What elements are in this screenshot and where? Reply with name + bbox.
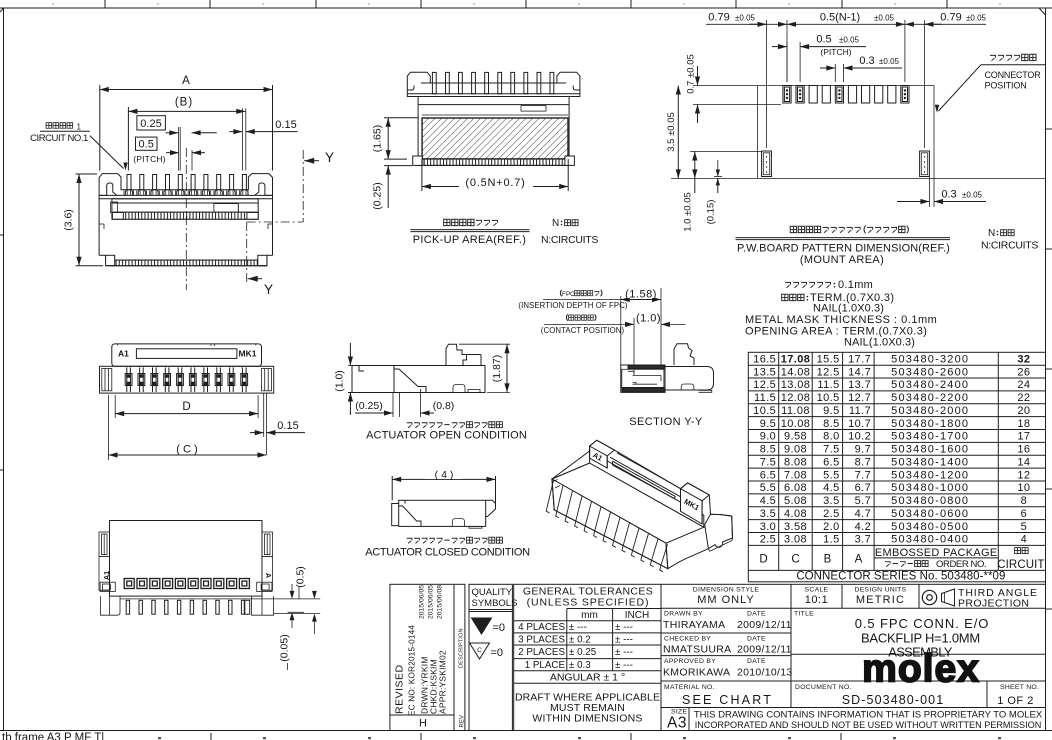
svg-text:0.15: 0.15 [277, 420, 298, 432]
svg-text:(1.58): (1.58) [625, 289, 657, 301]
svg-text:,: , [157, 0, 159, 6]
svg-text:17.7: 17.7 [848, 354, 871, 366]
svg-text:12.5: 12.5 [817, 366, 840, 378]
svg-text:P.W.BOARD PATTERN DIMENSION(RE: P.W.BOARD PATTERN DIMENSION(REF.) [737, 243, 950, 255]
svg-text:10.08: 10.08 [781, 418, 811, 430]
svg-text:± ---: ± --- [615, 622, 633, 633]
svg-text:B: B [824, 553, 832, 565]
svg-text:503480-2200: 503480-2200 [891, 392, 969, 404]
svg-text:TITLE: TITLE [794, 611, 814, 618]
svg-text:503480-1000: 503480-1000 [891, 482, 969, 494]
svg-text:8.0: 8.0 [823, 431, 840, 443]
svg-text:0.25: 0.25 [140, 118, 161, 130]
svg-text:SECTION Y-Y: SECTION Y-Y [629, 416, 703, 428]
svg-text:(UNLESS SPECIFIED): (UNLESS SPECIFIED) [527, 597, 650, 609]
svg-text:3 PLACES: 3 PLACES [518, 634, 565, 645]
svg-text:PICK-UP AREA(REF.): PICK-UP AREA(REF.) [413, 234, 526, 246]
svg-text:D: D [759, 553, 767, 565]
svg-text:11.5: 11.5 [817, 379, 839, 391]
svg-text:3.5: 3.5 [760, 508, 777, 520]
svg-text:±0.05: ±0.05 [839, 36, 860, 45]
svg-text:2015/06/05: 2015/06/05 [419, 585, 426, 619]
svg-text:(0.25): (0.25) [355, 400, 382, 412]
svg-text:4.2: 4.2 [855, 521, 872, 533]
svg-text:CIRCUIT: CIRCUIT [997, 559, 1044, 571]
svg-text:,: , [368, 0, 370, 6]
svg-text:2.5: 2.5 [760, 534, 777, 546]
svg-text:(3.6): (3.6) [63, 209, 75, 231]
svg-text:12: 12 [1017, 469, 1030, 481]
svg-text:DRAWN BY: DRAWN BY [664, 611, 703, 618]
svg-text:8.5: 8.5 [760, 444, 777, 456]
svg-text:KMORIKAWA: KMORIKAWA [663, 667, 730, 679]
svg-text:ACTUATOR OPEN CONDITION: ACTUATOR OPEN CONDITION [366, 430, 527, 442]
svg-text:3.5 ±0.05: 3.5 ±0.05 [666, 112, 677, 152]
svg-text:20: 20 [1017, 405, 1030, 417]
svg-text:METRIC: METRIC [856, 594, 905, 606]
svg-text:8.5: 8.5 [823, 418, 840, 430]
svg-text:2009/12/11: 2009/12/11 [737, 619, 792, 631]
svg-text:0.5: 0.5 [816, 34, 831, 46]
svg-text:8.7: 8.7 [855, 457, 872, 469]
svg-text:10: 10 [1017, 482, 1030, 494]
svg-text:9.7: 9.7 [855, 444, 872, 456]
svg-text:H: H [419, 718, 427, 730]
svg-text:,: , [52, 0, 54, 6]
svg-text:MM ONLY: MM ONLY [697, 594, 755, 606]
svg-text:INCORPORATED AND SHOULD NOT BE: INCORPORATED AND SHOULD NOT BE USED WITH… [695, 720, 1042, 730]
svg-text:10.2: 10.2 [848, 431, 871, 443]
svg-text:503480-0400: 503480-0400 [891, 534, 969, 546]
svg-text:7.5: 7.5 [823, 444, 840, 456]
svg-text:( C ): ( C ) [176, 444, 197, 456]
svg-text:6.7: 6.7 [855, 482, 872, 494]
svg-text:DOCUMENT NO.: DOCUMENT NO. [795, 684, 852, 691]
svg-text:DATE: DATE [747, 658, 766, 665]
svg-text:(CONTACT POSITION): (CONTACT POSITION) [541, 326, 625, 335]
svg-text:A1: A1 [118, 349, 129, 359]
svg-text:(B): (B) [175, 97, 193, 109]
svg-text:C: C [477, 647, 482, 654]
svg-text:10.7: 10.7 [848, 418, 871, 430]
svg-text:2 PLACES: 2 PLACES [518, 647, 565, 658]
svg-text:DESCRIPTION: DESCRIPTION [459, 628, 465, 668]
svg-text:10.5: 10.5 [817, 392, 840, 404]
svg-text:0.5(N-1): 0.5(N-1) [820, 11, 860, 23]
svg-text:1: 1 [77, 123, 82, 132]
svg-text:1 PLACE: 1 PLACE [525, 660, 566, 671]
svg-text:9.5: 9.5 [760, 418, 777, 430]
svg-text:4.5: 4.5 [823, 482, 840, 494]
svg-text:METAL MASK THICKNESS : 0.1mm: METAL MASK THICKNESS : 0.1mm [745, 314, 937, 326]
svg-text:=0: =0 [493, 622, 506, 634]
svg-text:503480-1600: 503480-1600 [891, 444, 969, 456]
svg-text:APPR:YSKIM02: APPR:YSKIM02 [438, 650, 448, 714]
svg-text:SEE CHART: SEE CHART [682, 693, 773, 707]
svg-text:CIRCUIT NO.1: CIRCUIT NO.1 [30, 133, 88, 144]
svg-text:(PITCH): (PITCH) [820, 47, 851, 57]
svg-text:0.1mm: 0.1mm [838, 279, 873, 291]
svg-text:2015/06/05: 2015/06/05 [428, 585, 435, 619]
svg-text:15.5: 15.5 [817, 354, 840, 366]
svg-text:5.5: 5.5 [760, 482, 777, 494]
svg-text:ACTUATOR CLOSED CONDITION: ACTUATOR CLOSED CONDITION [365, 547, 530, 559]
svg-text:DATE: DATE [747, 636, 766, 643]
svg-text:QUALITY: QUALITY [472, 587, 513, 598]
svg-text:Y: Y [325, 150, 334, 165]
svg-text:9.0: 9.0 [760, 431, 777, 443]
svg-text:4.7: 4.7 [855, 508, 872, 520]
svg-text:0.5 FPC CONN. E/O: 0.5 FPC CONN. E/O [855, 616, 990, 631]
svg-text:(1.0): (1.0) [334, 370, 346, 392]
svg-text:EC NO: KOR2015-0144: EC NO: KOR2015-0144 [408, 625, 417, 716]
svg-text:9.08: 9.08 [784, 444, 807, 456]
svg-text:(MOUNT AREA): (MOUNT AREA) [800, 254, 884, 266]
svg-text:7.7: 7.7 [855, 469, 872, 481]
svg-text:4.08: 4.08 [784, 508, 807, 520]
svg-text:10:1: 10:1 [805, 594, 828, 606]
svg-text:24: 24 [1017, 379, 1030, 391]
svg-text:503480-0500: 503480-0500 [891, 521, 969, 533]
svg-text:REVISED: REVISED [394, 664, 406, 714]
svg-text:5.08: 5.08 [784, 495, 807, 507]
svg-text:0.7 ±0.05: 0.7 ±0.05 [686, 54, 697, 94]
svg-text:3.5: 3.5 [823, 495, 840, 507]
svg-text:THIS DRAWING CONTAINS INFORMAT: THIS DRAWING CONTAINS INFORMATION THAT I… [694, 710, 1043, 721]
svg-text:7.5: 7.5 [760, 457, 777, 469]
svg-text:(INSERTION DEPTH OF FPC): (INSERTION DEPTH OF FPC) [518, 301, 628, 310]
svg-text:CHECKED BY: CHECKED BY [664, 636, 711, 643]
svg-text:REV: REV [460, 715, 466, 727]
svg-text:,: , [578, 0, 580, 6]
svg-text:,: , [788, 0, 790, 6]
svg-text:7.08: 7.08 [784, 469, 807, 481]
svg-text:C: C [791, 553, 799, 565]
svg-text:NAIL(1.0X0.3): NAIL(1.0X0.3) [844, 337, 915, 349]
svg-text:MK1: MK1 [239, 349, 257, 359]
svg-text:NAIL(1.0X0.3): NAIL(1.0X0.3) [813, 303, 884, 315]
svg-text:3.58: 3.58 [784, 521, 807, 533]
svg-text:± 0.2: ± 0.2 [569, 634, 591, 645]
svg-text:8: 8 [1021, 495, 1028, 507]
svg-text:DATE: DATE [747, 611, 766, 618]
svg-text:17.08: 17.08 [781, 354, 811, 366]
svg-text:0.5: 0.5 [139, 139, 154, 151]
svg-text:503480-0600: 503480-0600 [891, 508, 969, 520]
svg-text:±0.05: ±0.05 [879, 57, 900, 66]
svg-text:Y: Y [264, 282, 273, 297]
svg-text:503480-1200: 503480-1200 [891, 469, 969, 481]
svg-text:,: , [262, 0, 264, 6]
svg-text:±0.05: ±0.05 [874, 13, 895, 22]
svg-text:13.08: 13.08 [781, 379, 811, 391]
svg-text:ANGULAR ± 1 °: ANGULAR ± 1 ° [550, 672, 625, 684]
svg-text:3.08: 3.08 [784, 534, 807, 546]
svg-text:4 PLACES: 4 PLACES [518, 622, 565, 633]
svg-text:D: D [182, 401, 190, 413]
svg-text:1.0 ±0.05: 1.0 ±0.05 [683, 192, 694, 232]
svg-text:(PITCH): (PITCH) [133, 154, 166, 164]
svg-text:17: 17 [1017, 431, 1030, 443]
svg-text:1 OF 2: 1 OF 2 [997, 695, 1034, 707]
svg-text:(0.8): (0.8) [433, 400, 455, 412]
svg-text:N: N [988, 228, 995, 239]
svg-text:POSITION: POSITION [985, 81, 1027, 91]
svg-text:SCALE: SCALE [805, 587, 829, 594]
svg-text:3.0: 3.0 [760, 521, 777, 533]
svg-text:6: 6 [1021, 508, 1028, 520]
svg-text:26: 26 [1017, 366, 1030, 378]
svg-text:DESIGN UNITS: DESIGN UNITS [855, 587, 907, 594]
svg-text:6.5: 6.5 [823, 457, 840, 469]
svg-text:ORDER NO.: ORDER NO. [936, 559, 986, 570]
svg-text:503480-0800: 503480-0800 [891, 495, 969, 507]
svg-text:± ---: ± --- [615, 647, 633, 658]
svg-text:DIMENSION STYLE: DIMENSION STYLE [693, 587, 760, 594]
svg-text:2010/10/13: 2010/10/13 [737, 667, 793, 679]
svg-text:5.7: 5.7 [855, 495, 872, 507]
svg-text:CONNECTOR SERIES No. 503480-**: CONNECTOR SERIES No. 503480-**09 [796, 571, 1005, 583]
svg-text:5.5: 5.5 [823, 469, 840, 481]
svg-text:503480-2600: 503480-2600 [891, 366, 969, 378]
svg-text:SYMBOLS: SYMBOLS [472, 598, 518, 609]
svg-text:(1.65): (1.65) [372, 125, 384, 152]
svg-text:0.79: 0.79 [940, 11, 961, 23]
svg-text:14.08: 14.08 [781, 366, 811, 378]
svg-text:16: 16 [1017, 444, 1030, 456]
svg-text:A: A [264, 573, 271, 578]
svg-text:± 0.25: ± 0.25 [569, 647, 597, 658]
svg-text:18: 18 [1017, 418, 1030, 430]
svg-text:,: , [894, 0, 896, 6]
svg-text:0.79: 0.79 [708, 11, 729, 23]
svg-text:3.7: 3.7 [855, 534, 872, 546]
svg-text:SD-503480-001: SD-503480-001 [842, 693, 945, 707]
svg-text:503480-2400: 503480-2400 [891, 379, 969, 391]
svg-text:,: , [473, 0, 475, 6]
svg-text:14: 14 [1017, 457, 1030, 469]
svg-text:± ---: ± --- [615, 660, 633, 671]
svg-text:11.08: 11.08 [781, 405, 810, 417]
svg-text:503480-2000: 503480-2000 [891, 405, 969, 417]
svg-text:APPROVED BY: APPROVED BY [664, 658, 716, 665]
svg-text:INCH: INCH [625, 610, 649, 621]
svg-text:A3: A3 [667, 715, 687, 732]
svg-text:32: 32 [1017, 354, 1030, 366]
svg-text:(0.05): (0.05) [279, 634, 291, 661]
svg-text:13.7: 13.7 [848, 379, 871, 391]
svg-text:A: A [855, 553, 863, 565]
svg-text:2.5: 2.5 [823, 508, 840, 520]
svg-text:± ---: ± --- [569, 622, 587, 633]
svg-text:mm: mm [581, 610, 598, 621]
svg-text:(1.87): (1.87) [491, 355, 503, 382]
svg-text:2009/12/11: 2009/12/11 [737, 644, 792, 656]
svg-text:4: 4 [1021, 534, 1028, 546]
svg-text:10.5: 10.5 [753, 405, 776, 417]
svg-text:A1: A1 [104, 571, 111, 580]
svg-text:503480-3200: 503480-3200 [891, 354, 969, 366]
svg-text:503480-1800: 503480-1800 [891, 418, 969, 430]
svg-text:22: 22 [1017, 392, 1030, 404]
svg-text:N: N [552, 218, 559, 229]
svg-text:11.7: 11.7 [849, 405, 871, 417]
svg-text:2.0: 2.0 [823, 521, 840, 533]
svg-text:(1.0): (1.0) [636, 313, 661, 325]
svg-text:0.15: 0.15 [275, 119, 296, 131]
svg-text:THIRAYAMA: THIRAYAMA [663, 619, 725, 631]
svg-text:(0.5N+0.7): (0.5N+0.7) [465, 177, 525, 189]
svg-text:(0.5): (0.5) [295, 566, 307, 588]
svg-text:2015/06/08: 2015/06/08 [437, 585, 444, 619]
svg-text:9.5: 9.5 [823, 405, 840, 417]
svg-text:,: , [683, 0, 685, 6]
svg-text:(0.25): (0.25) [372, 182, 384, 209]
svg-text:EMBOSSED PACKAGE: EMBOSSED PACKAGE [875, 547, 998, 559]
svg-text:6.5: 6.5 [760, 469, 777, 481]
svg-text:14.7: 14.7 [848, 366, 871, 378]
svg-text:1.5: 1.5 [823, 534, 840, 546]
svg-text:WITHIN DIMENSIONS: WITHIN DIMENSIONS [532, 713, 642, 725]
svg-text:503480-1700: 503480-1700 [891, 431, 969, 443]
svg-text:13.5: 13.5 [753, 366, 776, 378]
svg-text:,: , [999, 0, 1001, 6]
svg-text:PROJECTION: PROJECTION [958, 598, 1029, 610]
svg-text:A: A [182, 75, 190, 87]
svg-text:(0.15): (0.15) [706, 200, 717, 225]
svg-text:± ---: ± --- [615, 634, 633, 645]
svg-text:N:CIRCUITS: N:CIRCUITS [541, 234, 598, 246]
svg-text:5: 5 [1021, 521, 1028, 533]
svg-text:NMATSUURA: NMATSUURA [663, 644, 731, 656]
svg-text:4.5: 4.5 [760, 495, 777, 507]
svg-text:±0.05: ±0.05 [966, 13, 987, 22]
svg-text:0.3: 0.3 [859, 55, 874, 67]
svg-text:BACKFLIP H=1.0MM: BACKFLIP H=1.0MM [861, 631, 980, 646]
svg-text:tb frame A3 P MF T|: tb frame A3 P MF T| [2, 732, 104, 740]
svg-text:12.5: 12.5 [753, 379, 776, 391]
svg-text:N:CIRCUITS: N:CIRCUITS [981, 240, 1038, 252]
svg-text:±0.05: ±0.05 [962, 191, 983, 200]
svg-text:( 4 ): ( 4 ) [435, 469, 454, 481]
svg-text:8.08: 8.08 [784, 457, 807, 469]
svg-text:CONNECTOR: CONNECTOR [985, 70, 1042, 80]
svg-text:=0: =0 [491, 647, 504, 659]
svg-text:12.7: 12.7 [848, 392, 871, 404]
svg-text:SHEET NO.: SHEET NO. [1000, 684, 1039, 691]
svg-text:molex: molex [862, 648, 980, 691]
svg-text:11.5: 11.5 [754, 392, 776, 404]
svg-text:503480-1400: 503480-1400 [891, 457, 969, 469]
svg-text:± 0.3: ± 0.3 [569, 660, 591, 671]
svg-text:±0.05: ±0.05 [735, 13, 756, 22]
svg-text:9.58: 9.58 [784, 431, 807, 443]
svg-text:MATERIAL NO.: MATERIAL NO. [664, 684, 715, 691]
svg-text:6.08: 6.08 [784, 482, 807, 494]
svg-text:0.3: 0.3 [941, 189, 956, 201]
svg-text:16.5: 16.5 [753, 354, 776, 366]
svg-text:12.08: 12.08 [781, 392, 811, 404]
